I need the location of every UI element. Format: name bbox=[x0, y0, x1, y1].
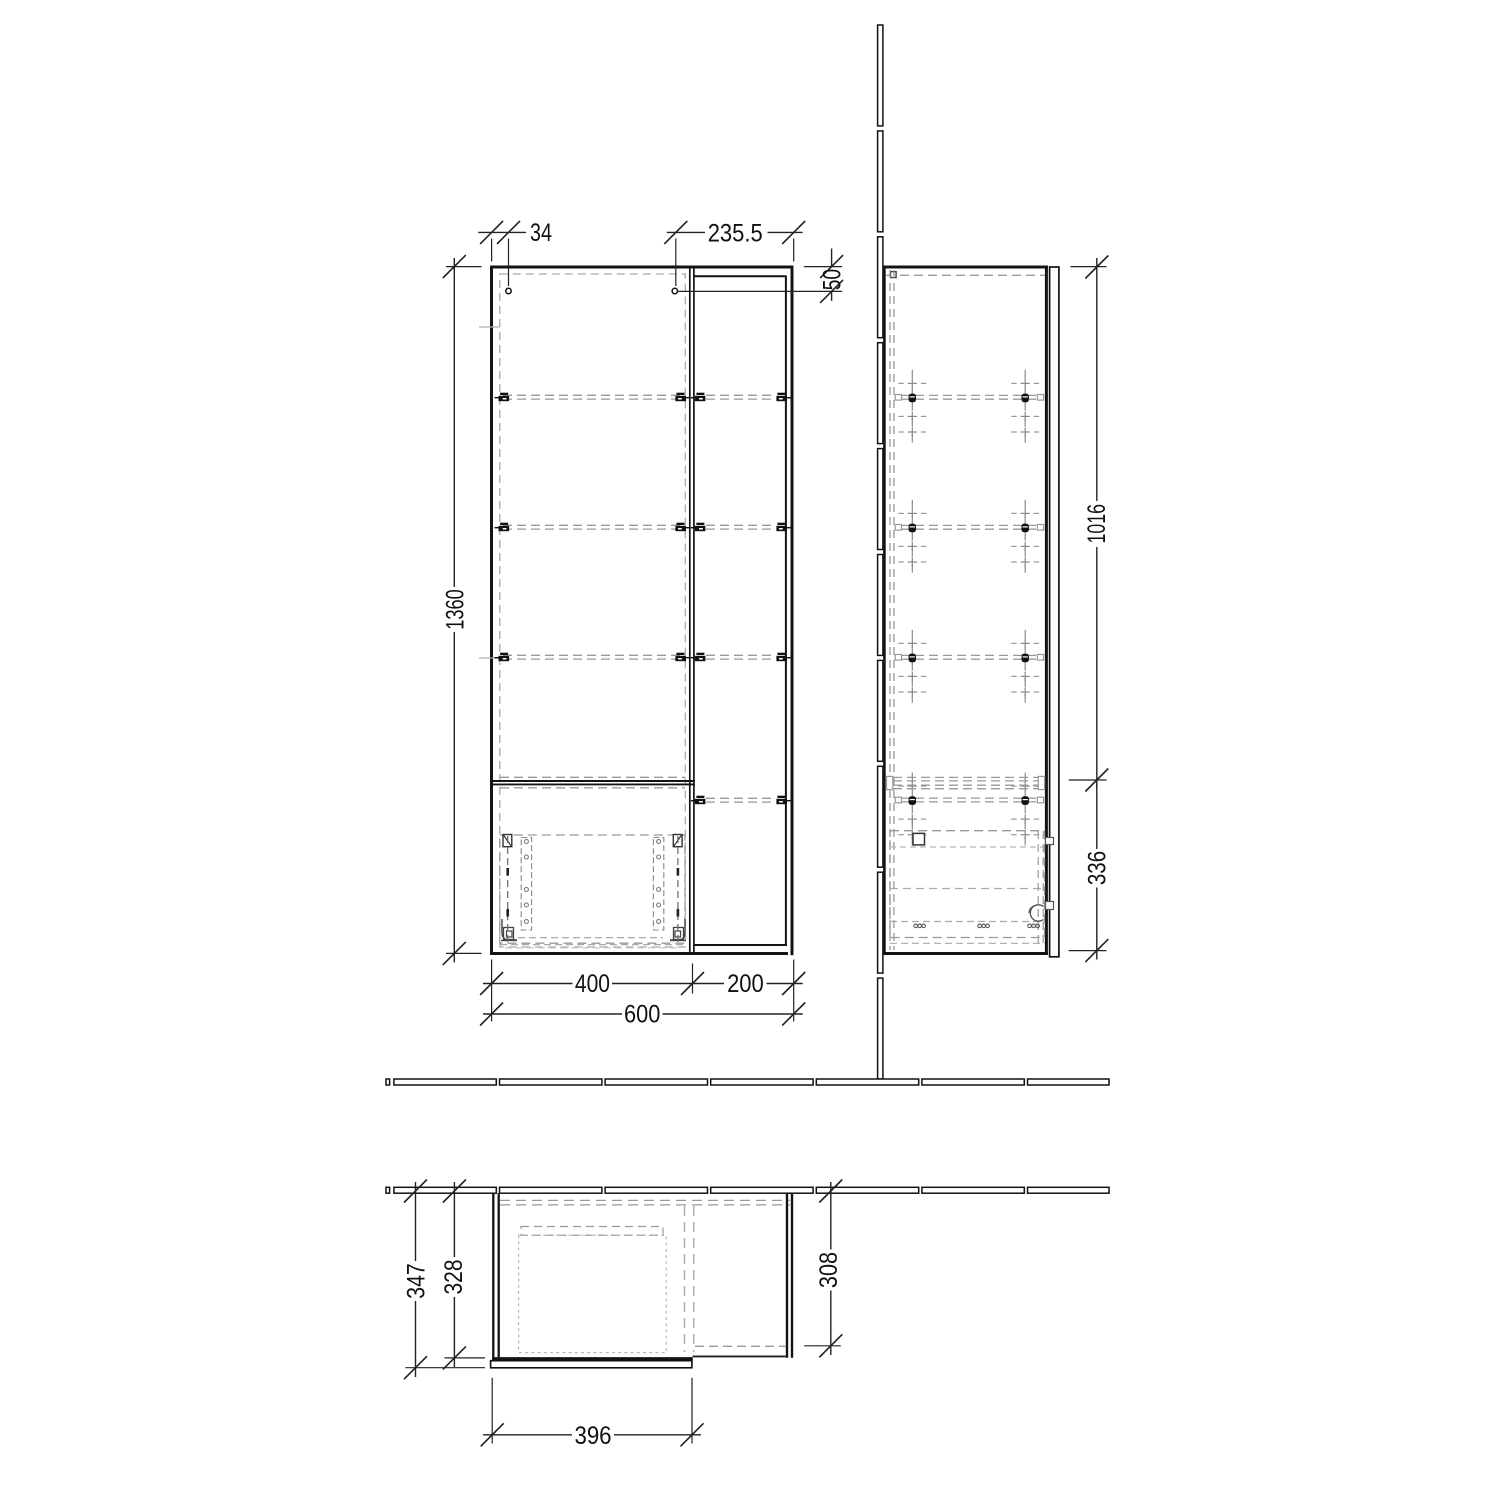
svg-text:336: 336 bbox=[1082, 851, 1110, 885]
svg-text:1360: 1360 bbox=[441, 589, 470, 630]
svg-text:50: 50 bbox=[818, 269, 846, 290]
svg-text:200: 200 bbox=[727, 970, 764, 998]
svg-text:235.5: 235.5 bbox=[708, 219, 763, 247]
svg-text:328: 328 bbox=[439, 1259, 467, 1294]
svg-text:1016: 1016 bbox=[1082, 504, 1111, 543]
svg-text:308: 308 bbox=[815, 1252, 843, 1288]
svg-text:34: 34 bbox=[530, 219, 552, 247]
svg-text:347: 347 bbox=[402, 1263, 430, 1298]
svg-text:400: 400 bbox=[575, 969, 610, 997]
svg-text:396: 396 bbox=[574, 1423, 611, 1450]
svg-text:600: 600 bbox=[624, 1000, 660, 1028]
